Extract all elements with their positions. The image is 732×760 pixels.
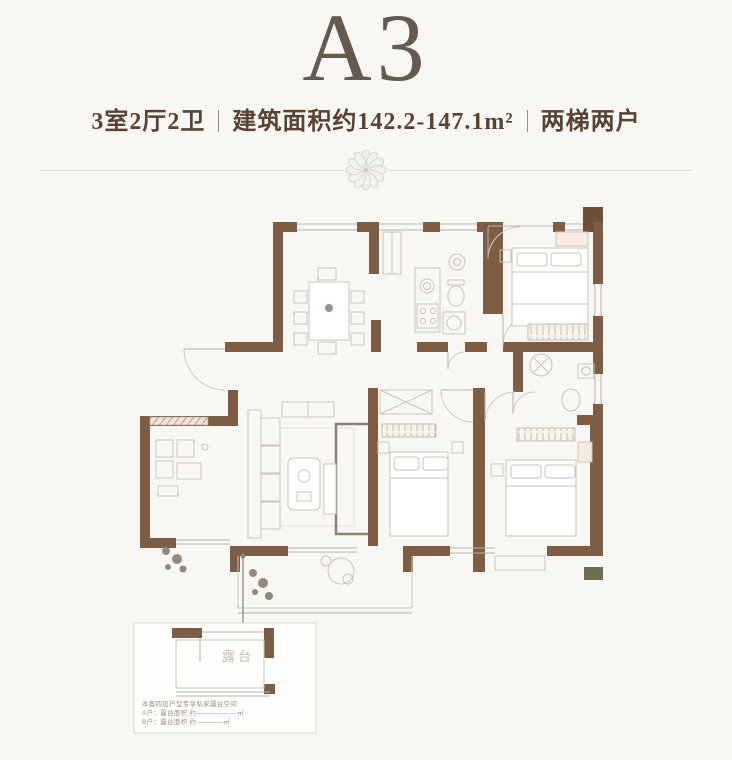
living-room: [248, 402, 368, 538]
bathroom-1: [443, 254, 465, 334]
toilet-icon: [448, 286, 464, 306]
kitchen-counter: [415, 268, 440, 332]
floorplan-page: A3 3室2厅2卫建筑面积约142.2-147.1m²两梯两户: [0, 0, 732, 760]
nightstand: [452, 442, 463, 453]
kitchen: [383, 232, 440, 332]
plants-icon: [162, 547, 187, 573]
floor-plan: 露台 本案四层户型专享私家露台空间 A户：露台面积 约——————㎡ B户：露台…: [0, 0, 732, 760]
tv-wall: [336, 424, 368, 534]
wardrobe: [517, 428, 575, 441]
sink-icon: [420, 279, 434, 293]
basin-icon: [582, 367, 591, 375]
basin-icon: [449, 254, 465, 270]
terrace-inset: 露台 本案四层户型专享私家露台空间 A户：露台面积 约——————㎡ B户：露台…: [134, 623, 316, 733]
bedroom-3: [491, 428, 592, 536]
bay-window: [495, 556, 545, 570]
bed: [512, 248, 588, 326]
dining-area: [294, 268, 364, 354]
terrace-label: 露台: [222, 649, 254, 664]
wardrobe: [382, 424, 436, 437]
balcony: [162, 547, 412, 613]
dresser: [578, 442, 592, 462]
nightstand: [378, 442, 389, 453]
stove-icon: [417, 304, 438, 328]
shoe-cabinet: [556, 232, 588, 246]
tv-icon: [324, 464, 336, 514]
bathroom-2: [530, 354, 594, 411]
centerpiece: [325, 304, 333, 312]
ac-pad: [584, 567, 603, 580]
nightstand: [491, 464, 503, 476]
toilet-icon: [562, 389, 580, 411]
coffee-table: [288, 458, 320, 510]
sofa-back: [248, 410, 261, 538]
inset-note-line: 本案四层户型专享私家露台空间: [142, 699, 237, 708]
patio-table: [328, 558, 354, 584]
inset-note-line: B户：露台面积 约————㎡: [142, 717, 231, 726]
inset-note-line: A户：露台面积 约——————㎡: [142, 708, 244, 717]
bedroom-1: [500, 248, 588, 340]
flex-room: [156, 440, 208, 496]
wardrobe: [528, 324, 588, 340]
foyer: [556, 232, 588, 246]
washer-icon: [443, 312, 465, 334]
plants-icon: [249, 569, 273, 600]
flex-window-hatch: [150, 417, 208, 425]
